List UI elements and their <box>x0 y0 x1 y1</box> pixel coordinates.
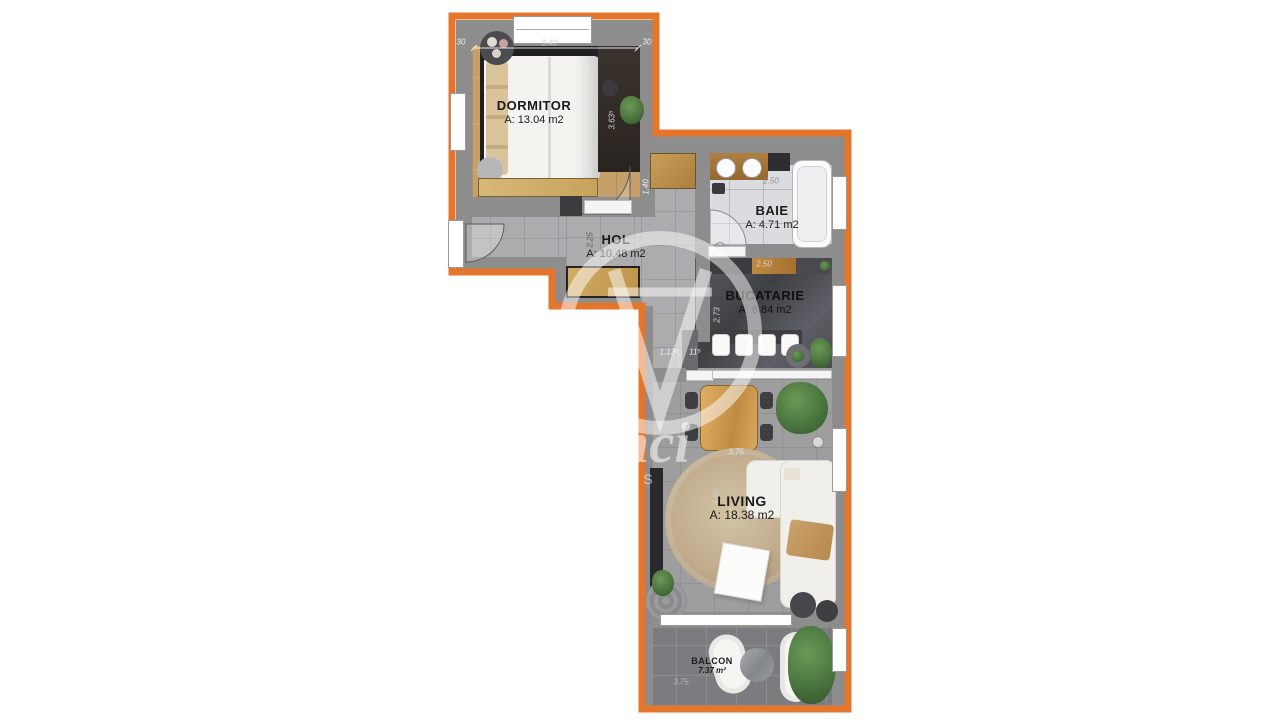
dim-bedroom-width: 3.40 <box>541 39 557 48</box>
flower-1 <box>487 37 497 47</box>
flower-3 <box>492 49 501 58</box>
baie-area: A: 4.71 m2 <box>745 219 798 232</box>
kitchen-plant <box>810 338 832 368</box>
bucatarie-area: A: 6.84 m2 <box>725 304 804 317</box>
dormitor-name: DORMITOR <box>497 99 572 114</box>
bathroom-left-wall <box>695 153 710 258</box>
dim-balcon-width: 3.75 <box>673 678 689 687</box>
dining-chair-3 <box>760 392 773 409</box>
dim-bedroom-right-wall: 30 <box>643 38 652 47</box>
room-label-bucatarie: BUCATARIE A: 6.84 m2 <box>725 289 804 317</box>
pouf-1 <box>790 592 816 618</box>
dining-chair-1 <box>685 392 698 409</box>
kitchen-chair-1 <box>712 334 730 356</box>
desk-chair <box>602 80 618 96</box>
dim-opening-right: 11⁵ <box>689 348 701 357</box>
bathroom-window <box>832 176 847 230</box>
floor-lamp <box>812 436 824 448</box>
bedroom-left-window <box>450 93 466 151</box>
sofa-pillow <box>784 468 800 480</box>
hall-top-closet <box>650 153 696 189</box>
toilet <box>712 183 725 194</box>
room-label-hol: HOL A: 10.48 m2 <box>586 233 645 261</box>
balcony-stone-table <box>740 648 774 682</box>
bucatarie-name: BUCATARIE <box>725 289 804 304</box>
hol-area: A: 10.48 m2 <box>586 248 645 261</box>
hall-bottom-wall <box>646 368 686 382</box>
bathtub-inner <box>797 166 827 242</box>
room-label-balcon: BALCON 7.37 m² <box>691 656 733 676</box>
balcon-area: 7.37 m² <box>691 667 733 676</box>
dining-chair-4 <box>760 424 773 441</box>
bedroom-top-window-line <box>516 29 589 30</box>
kitchen-living-threshold <box>712 370 832 379</box>
kitchen-plant-small <box>820 261 830 271</box>
room-label-dormitor: DORMITOR A: 13.04 m2 <box>497 99 572 127</box>
bath-sink-2 <box>742 158 762 178</box>
dim-bedroom-depth: 3.63⁵ <box>608 111 617 130</box>
hall-step-wall <box>552 257 566 306</box>
hol-name: HOL <box>586 233 645 248</box>
entrance-door-leaf <box>448 220 464 268</box>
living-big-plant <box>776 382 828 434</box>
bedroom-dresser-bottom <box>478 178 598 197</box>
bedroom-door-leaf <box>560 196 582 216</box>
kitchen-chair-3 <box>758 334 776 356</box>
bath-sink-1 <box>716 158 736 178</box>
baie-name: BAIE <box>745 204 798 219</box>
bedroom-plant <box>620 96 644 124</box>
dim-living-depth: 4.60 <box>712 489 721 505</box>
dim-living-width: 3.75 <box>728 448 744 457</box>
kitchen-chair-2 <box>735 334 753 356</box>
hall-bottom-left-wall <box>456 257 566 273</box>
dim-hol-width: 2.25 <box>586 232 595 248</box>
coffee-table <box>714 542 770 602</box>
dim-bucatarie-width: 2.50 <box>756 260 772 269</box>
hall-niche-wardrobe <box>566 266 640 298</box>
balcony-sliding-door <box>660 614 792 626</box>
kitchen-left-wall <box>696 258 710 342</box>
living-area: A: 18.38 m2 <box>710 509 775 523</box>
hall-living-threshold <box>686 370 714 381</box>
balcony-window <box>832 628 847 672</box>
dim-bucatarie-depth: 2.73 <box>713 307 722 323</box>
dining-table <box>700 385 758 451</box>
dim-bedroom-left-wall: 30 <box>457 38 466 47</box>
balcony-plant <box>788 626 836 704</box>
flower-2 <box>499 39 508 48</box>
kitchen-table-plant <box>792 350 804 362</box>
bathroom-door-threshold <box>708 246 746 257</box>
dormitor-area: A: 13.04 m2 <box>497 114 572 127</box>
kitchen-appliance-left <box>710 258 752 274</box>
sofa-blanket <box>786 519 835 561</box>
dim-opening-left: 1.13⁵ <box>660 348 679 357</box>
floor-plan-canvas: DORMITOR A: 13.04 m2 BAIE A: 4.71 m2 HOL… <box>0 0 1280 720</box>
living-window <box>832 428 847 492</box>
dim-bedroom-door: 1.40 <box>642 179 651 195</box>
dining-chair-2 <box>685 424 698 441</box>
pouf-2 <box>816 600 838 622</box>
living-plant-bottom <box>652 570 674 596</box>
kitchen-window <box>832 285 847 357</box>
bath-cabinet <box>768 153 790 171</box>
dim-baie-width: 2.50 <box>763 177 779 186</box>
upper-right-top-wall <box>640 133 848 153</box>
room-label-baie: BAIE A: 4.71 m2 <box>745 204 798 232</box>
flower-table <box>480 31 514 65</box>
balcon-name: BALCON <box>691 656 733 666</box>
bedroom-door-threshold <box>584 200 632 214</box>
